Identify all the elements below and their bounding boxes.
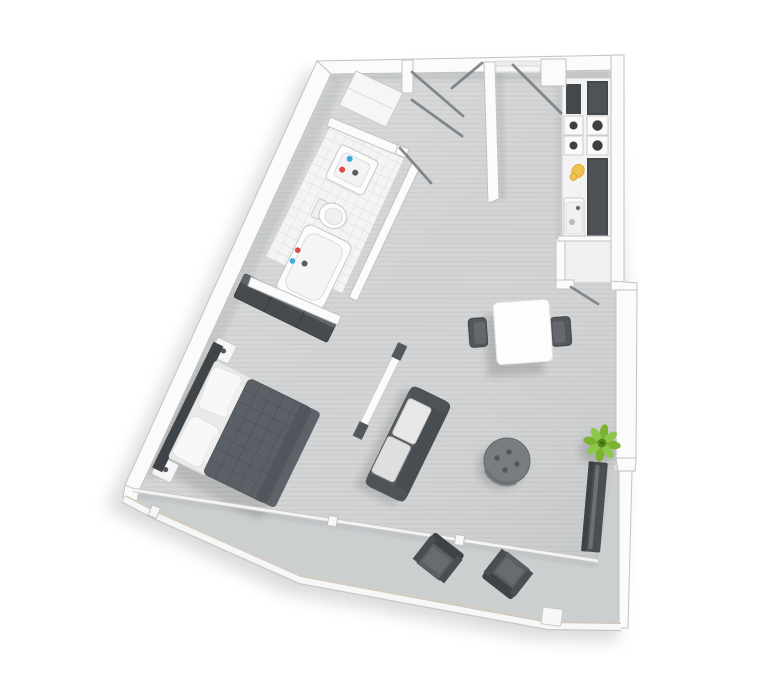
sink-drain-icon [569, 219, 575, 225]
dining-chair [550, 316, 572, 346]
ottoman-button [502, 467, 507, 472]
balcony-right-railing [619, 471, 632, 628]
kitchen-counter-dark-top [589, 160, 606, 236]
railing-post-large [541, 607, 563, 627]
burner-icon [570, 122, 578, 130]
dining-chair [468, 317, 488, 347]
glass-post [454, 534, 464, 545]
ottoman-button [494, 455, 499, 460]
closet-floor [563, 241, 611, 282]
ottoman-button [506, 449, 511, 454]
right-wall-upper [611, 55, 624, 282]
kitchen-sink [564, 198, 584, 238]
burner-icon [592, 140, 602, 150]
floorplan-canvas [0, 0, 768, 696]
entry-shaft-block [541, 59, 566, 86]
right-wall-lower-block [616, 458, 636, 471]
kitchen [562, 78, 611, 240]
burner-icon [570, 142, 578, 150]
sink-faucet-icon [576, 206, 580, 210]
kitchen-appliance-tall [566, 84, 581, 114]
glass-post [327, 515, 337, 526]
closet-top-wall [558, 236, 611, 241]
entry-door-post [402, 60, 413, 93]
kitchen-fridge-top [589, 83, 606, 113]
floorplan-svg [0, 0, 768, 696]
burner-icon [592, 120, 602, 130]
ottoman-button [514, 461, 519, 466]
right-wall-mid [616, 290, 637, 461]
dining-table [493, 299, 553, 365]
